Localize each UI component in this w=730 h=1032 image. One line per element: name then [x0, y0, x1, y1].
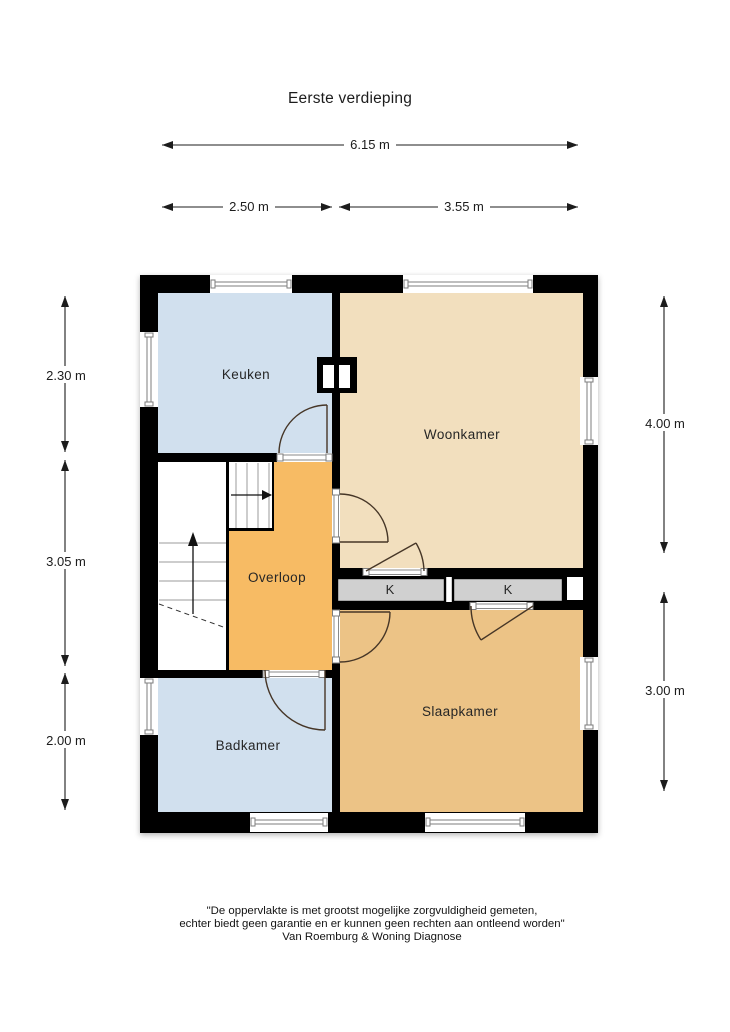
closet-left-label: K: [386, 582, 395, 597]
window-woonkamer-top: [403, 275, 533, 293]
dimension-width-left: 2.50 m: [162, 198, 332, 215]
room-overloop-floor-upper: [274, 462, 332, 531]
stairs-area: [158, 462, 226, 670]
footer-disclaimer-line1: "De oppervlakte is met grootst mogelijke…: [207, 905, 538, 917]
room-keuken-label: Keuken: [222, 367, 270, 382]
floor-plan-svg: Eerste verdieping 6.15 m 2.50 m 3.55 m 2…: [0, 0, 730, 1032]
chimney: [317, 357, 357, 393]
door-opening-keuken: [277, 453, 332, 462]
door-opening-woonkamer: [332, 489, 340, 543]
door-opening-slaapkamer: [332, 610, 340, 663]
window-badkamer-left: [140, 678, 158, 735]
window-woonkamer-right: [580, 377, 598, 445]
dim-label-left-top: 2.30 m: [46, 368, 86, 383]
door-opening-closet-left: [363, 568, 427, 576]
room-woonkamer-label: Woonkamer: [424, 427, 500, 442]
dimension-width-right: 3.55 m: [339, 198, 578, 215]
dim-label-left-middle: 3.05 m: [46, 554, 86, 569]
door-opening-badkamer: [263, 670, 325, 678]
dimension-width-total: 6.15 m: [162, 136, 578, 153]
closet-right-label: K: [504, 582, 513, 597]
dim-label-left-bottom: 2.00 m: [46, 733, 86, 748]
window-slaapkamer-bottom: [425, 813, 525, 832]
floor-plan-page: Eerste verdieping 6.15 m 2.50 m 3.55 m 2…: [0, 0, 730, 1032]
dimension-left-bottom: 2.00 m: [40, 673, 92, 810]
floor-plan: Keuken Woonkamer Overloop Badkamer Slaap…: [140, 275, 598, 833]
room-badkamer-label: Badkamer: [216, 738, 281, 753]
dim-label-right-top: 4.00 m: [645, 416, 685, 431]
dimension-left-top: 2.30 m: [40, 296, 92, 452]
room-slaapkamer-label: Slaapkamer: [422, 704, 498, 719]
dim-label-width-total: 6.15 m: [350, 137, 390, 152]
footer-disclaimer-line2: echter biedt geen garantie en er kunnen …: [179, 918, 564, 930]
plan-title: Eerste verdieping: [288, 90, 412, 107]
dimension-right-bottom: 3.00 m: [637, 592, 691, 791]
dimension-right-top: 4.00 m: [637, 296, 691, 553]
dimension-left-middle: 3.05 m: [40, 460, 92, 666]
window-badkamer-bottom: [250, 813, 328, 832]
window-keuken-top: [210, 275, 292, 293]
window-keuken-left: [140, 332, 158, 407]
footer-company-name: Van Roemburg & Woning Diagnose: [282, 931, 461, 943]
room-overloop-label: Overloop: [248, 570, 306, 585]
dim-label-width-left: 2.50 m: [229, 199, 269, 214]
room-overloop-floor-lower: [229, 531, 332, 670]
wall-niche: [567, 577, 583, 600]
window-slaapkamer-right: [580, 657, 598, 730]
dim-label-right-bottom: 3.00 m: [645, 683, 685, 698]
dim-label-width-right: 3.55 m: [444, 199, 484, 214]
door-opening-closet-right: [470, 602, 533, 610]
